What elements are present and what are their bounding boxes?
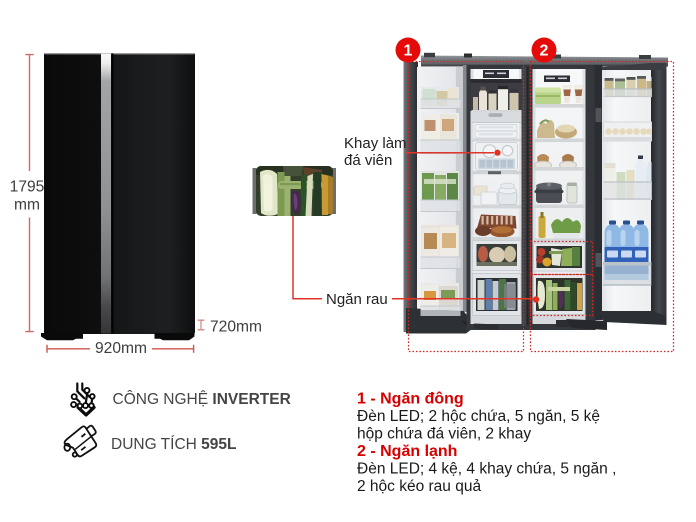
svg-text:720mm: 720mm xyxy=(210,319,262,336)
svg-text:DUNG TÍCH 595L: DUNG TÍCH 595L xyxy=(111,436,236,453)
svg-text:mm: mm xyxy=(14,197,40,214)
svg-text:CÔNG NGHỆ INVERTER: CÔNG NGHỆ INVERTER xyxy=(113,391,291,408)
svg-text:2 - Ngăn lạnh: 2 - Ngăn lạnh xyxy=(357,443,457,460)
svg-text:Đèn LED; 4 kệ, 4 khay chứa, 5: Đèn LED; 4 kệ, 4 khay chứa, 5 ngăn , xyxy=(357,460,616,477)
svg-text:Khay làm: Khay làm xyxy=(344,135,407,152)
svg-text:920mm: 920mm xyxy=(95,340,147,357)
svg-text:hộp chứa đá viên, 2 khay: hộp chứa đá viên, 2 khay xyxy=(357,426,531,443)
svg-text:1: 1 xyxy=(404,43,413,60)
svg-text:2: 2 xyxy=(540,43,549,60)
svg-text:1795: 1795 xyxy=(10,179,45,196)
svg-text:2 hộc kéo rau quả: 2 hộc kéo rau quả xyxy=(357,478,481,495)
svg-text:1 - Ngăn đông: 1 - Ngăn đông xyxy=(357,391,464,408)
svg-text:Ngăn rau: Ngăn rau xyxy=(326,291,388,308)
svg-text:Đèn LED; 2 hộc chứa, 5 ngăn, 5: Đèn LED; 2 hộc chứa, 5 ngăn, 5 kệ xyxy=(357,408,600,425)
svg-text:đá viên: đá viên xyxy=(344,152,392,169)
